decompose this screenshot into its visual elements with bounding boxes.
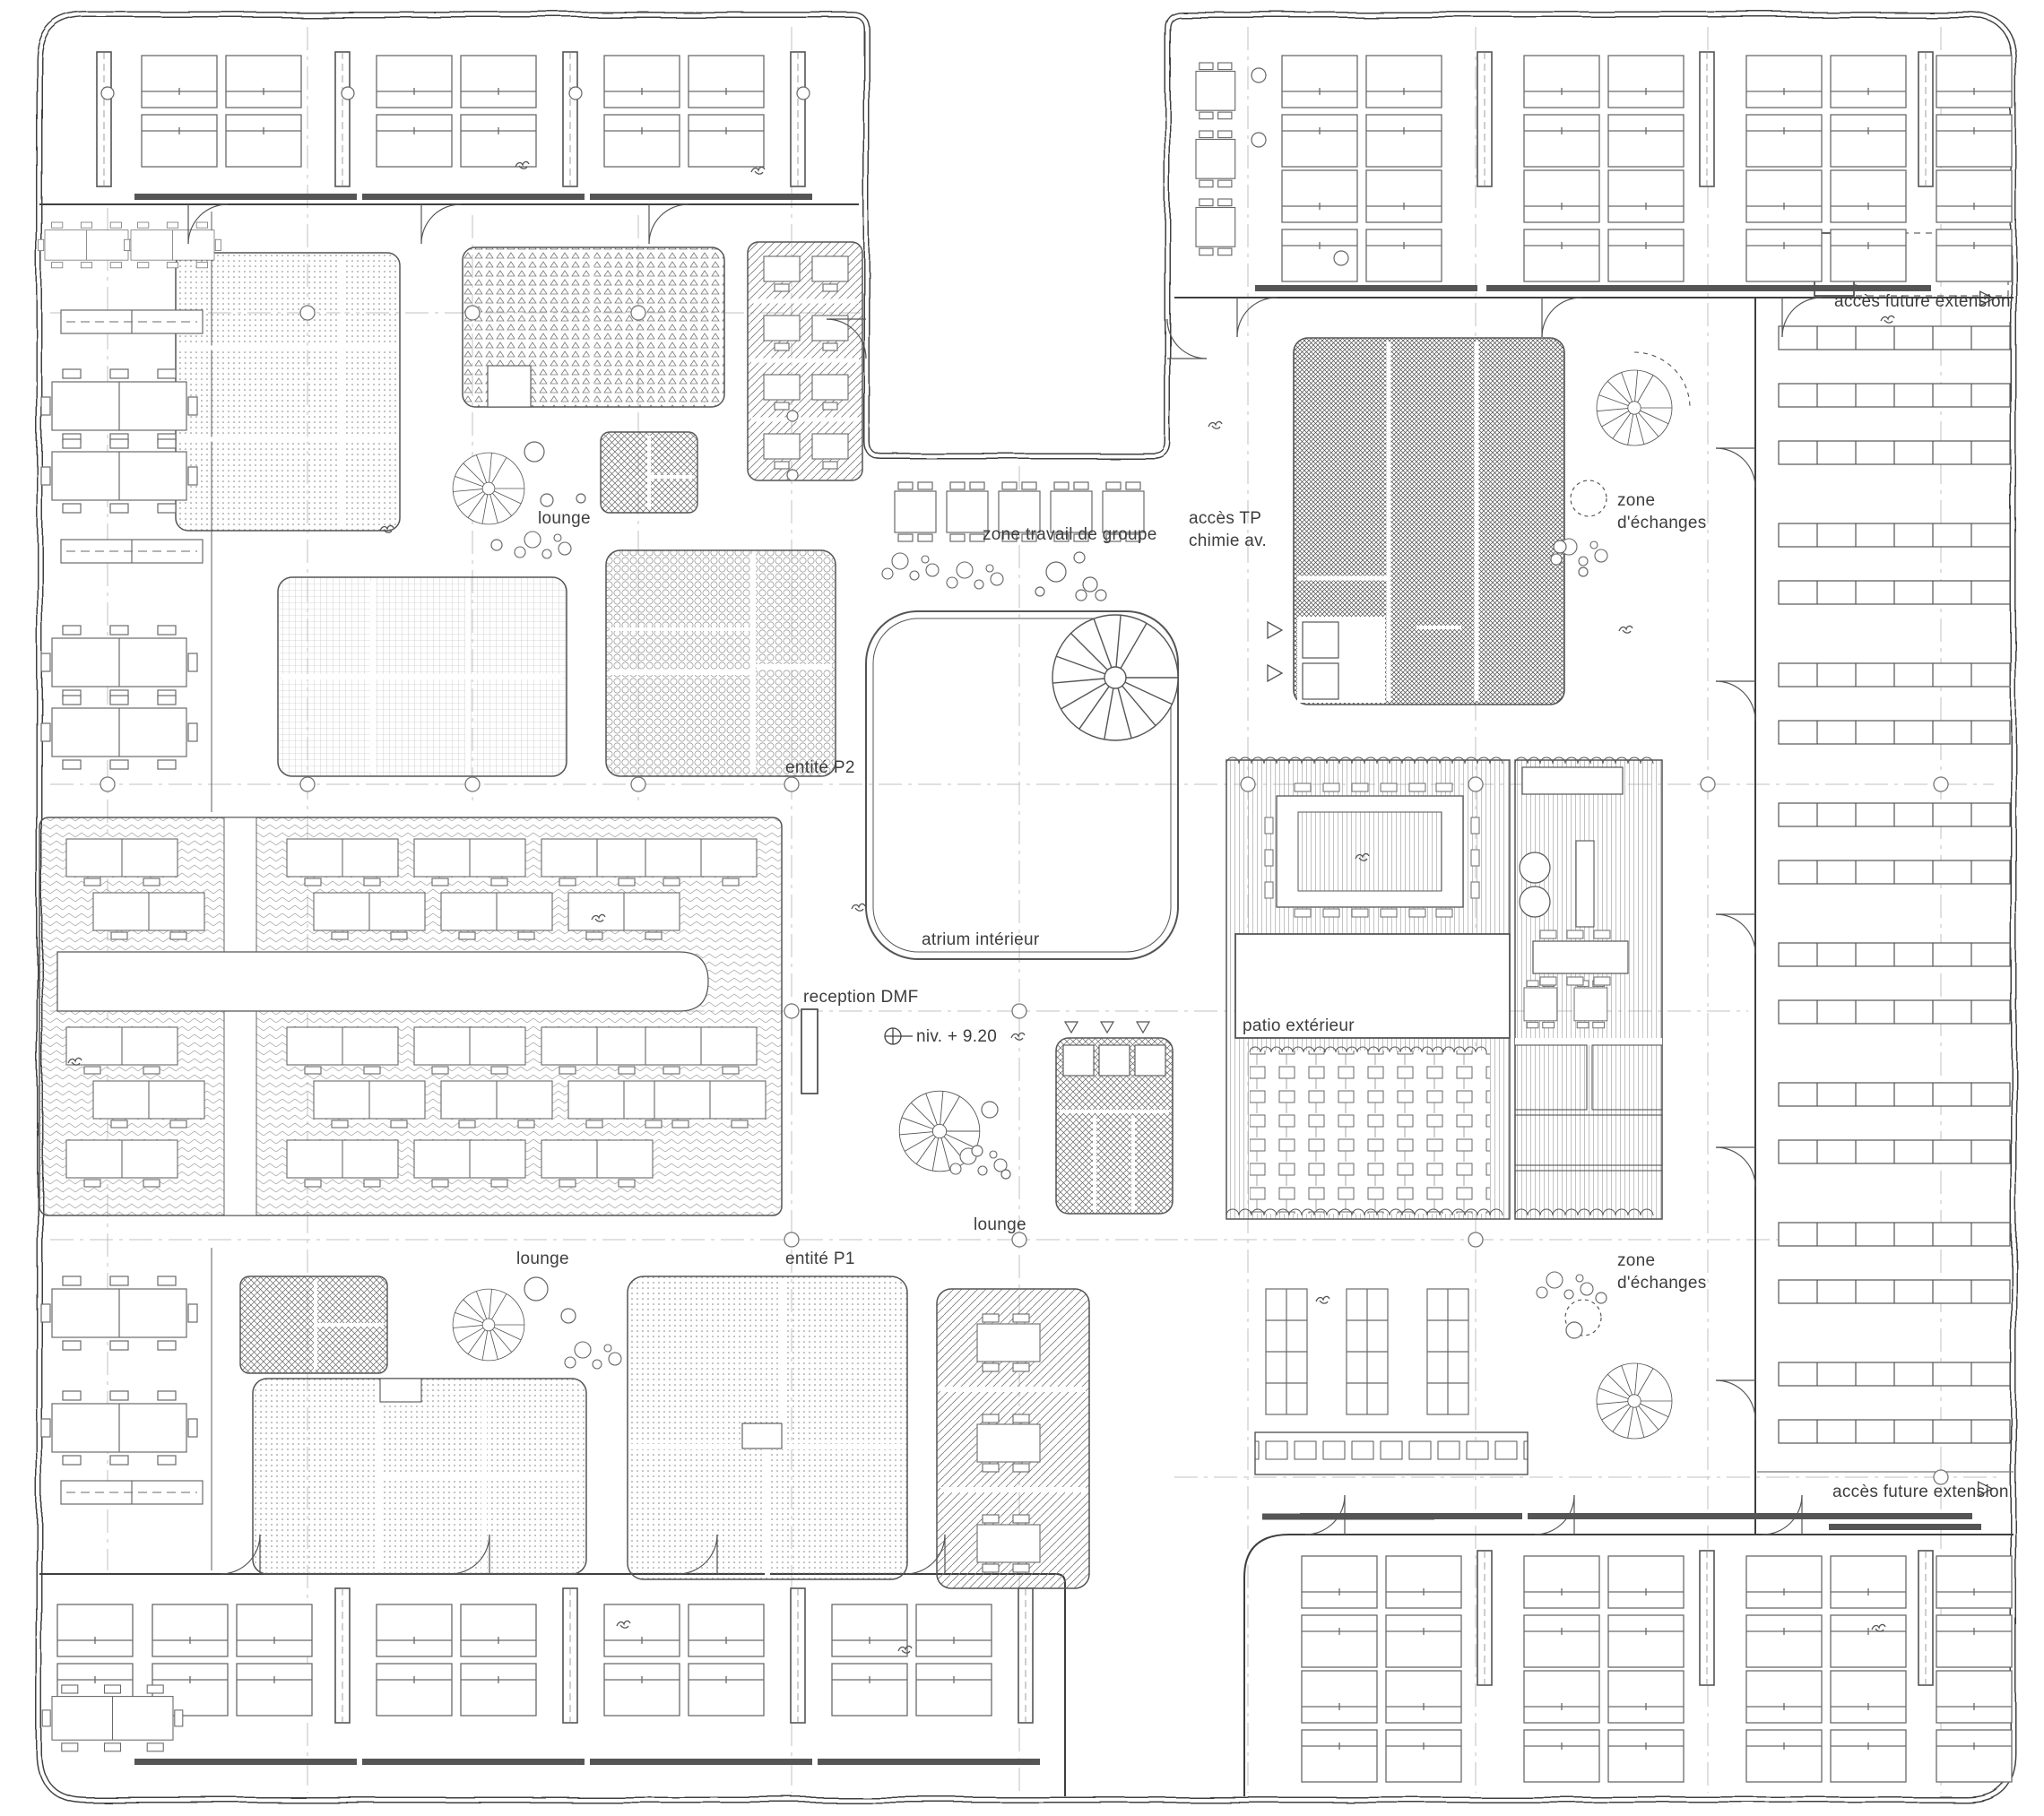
room-crosshatch-small-bottom [240, 1276, 387, 1373]
room-dotted-topleft [176, 253, 400, 531]
floor-plan: accès future extension ▷ lounge zone tra… [0, 0, 2044, 1816]
label-atrium: atrium intérieur [922, 929, 1040, 951]
exchange-circle-top [1571, 480, 1607, 516]
extension-arrow-icon: ▷ [1978, 1477, 1994, 1498]
label-zone-echanges-top: zone d'échanges [1617, 489, 1707, 534]
lockers-block [1056, 1038, 1173, 1214]
level-marker [885, 1028, 913, 1044]
room-entite-p1 [628, 1276, 907, 1579]
label-niveau: niv. + 9.20 [916, 1025, 997, 1048]
room-dotted-bottomleft [253, 1379, 586, 1574]
label-patio: patio extérieur [1243, 1015, 1355, 1037]
label-zone-echanges-bottom: zone d'échanges [1617, 1250, 1707, 1294]
label-lounge-top: lounge [538, 507, 591, 530]
label-reception: reception DMF [803, 986, 919, 1008]
extension-arrow-icon: ▷ [1979, 287, 1996, 307]
label-acces-tp: accès TP chimie av. [1189, 507, 1267, 552]
room-crosshatch-large [1294, 338, 1564, 705]
room-triangle-hatch [463, 247, 724, 407]
label-entite-p2: entité P2 [785, 757, 855, 779]
corridor-band [57, 952, 708, 1011]
room-crosshatch-small-top [601, 432, 697, 513]
label-lounge-bottom: lounge [516, 1248, 569, 1270]
label-entite-p1: entité P1 [785, 1248, 855, 1270]
label-lounge-center: lounge [974, 1214, 1026, 1236]
room-entite-p2-rings [606, 550, 836, 776]
room-entite-p2-grid [278, 577, 567, 776]
banquette [1522, 767, 1623, 794]
label-zone-travail: zone travail de groupe [983, 523, 1157, 546]
floor-plan-drawing [0, 0, 2044, 1816]
cafeteria-counter [1255, 1432, 1528, 1474]
auditorium-seating [1250, 1051, 1490, 1214]
dining-table [1533, 941, 1628, 973]
